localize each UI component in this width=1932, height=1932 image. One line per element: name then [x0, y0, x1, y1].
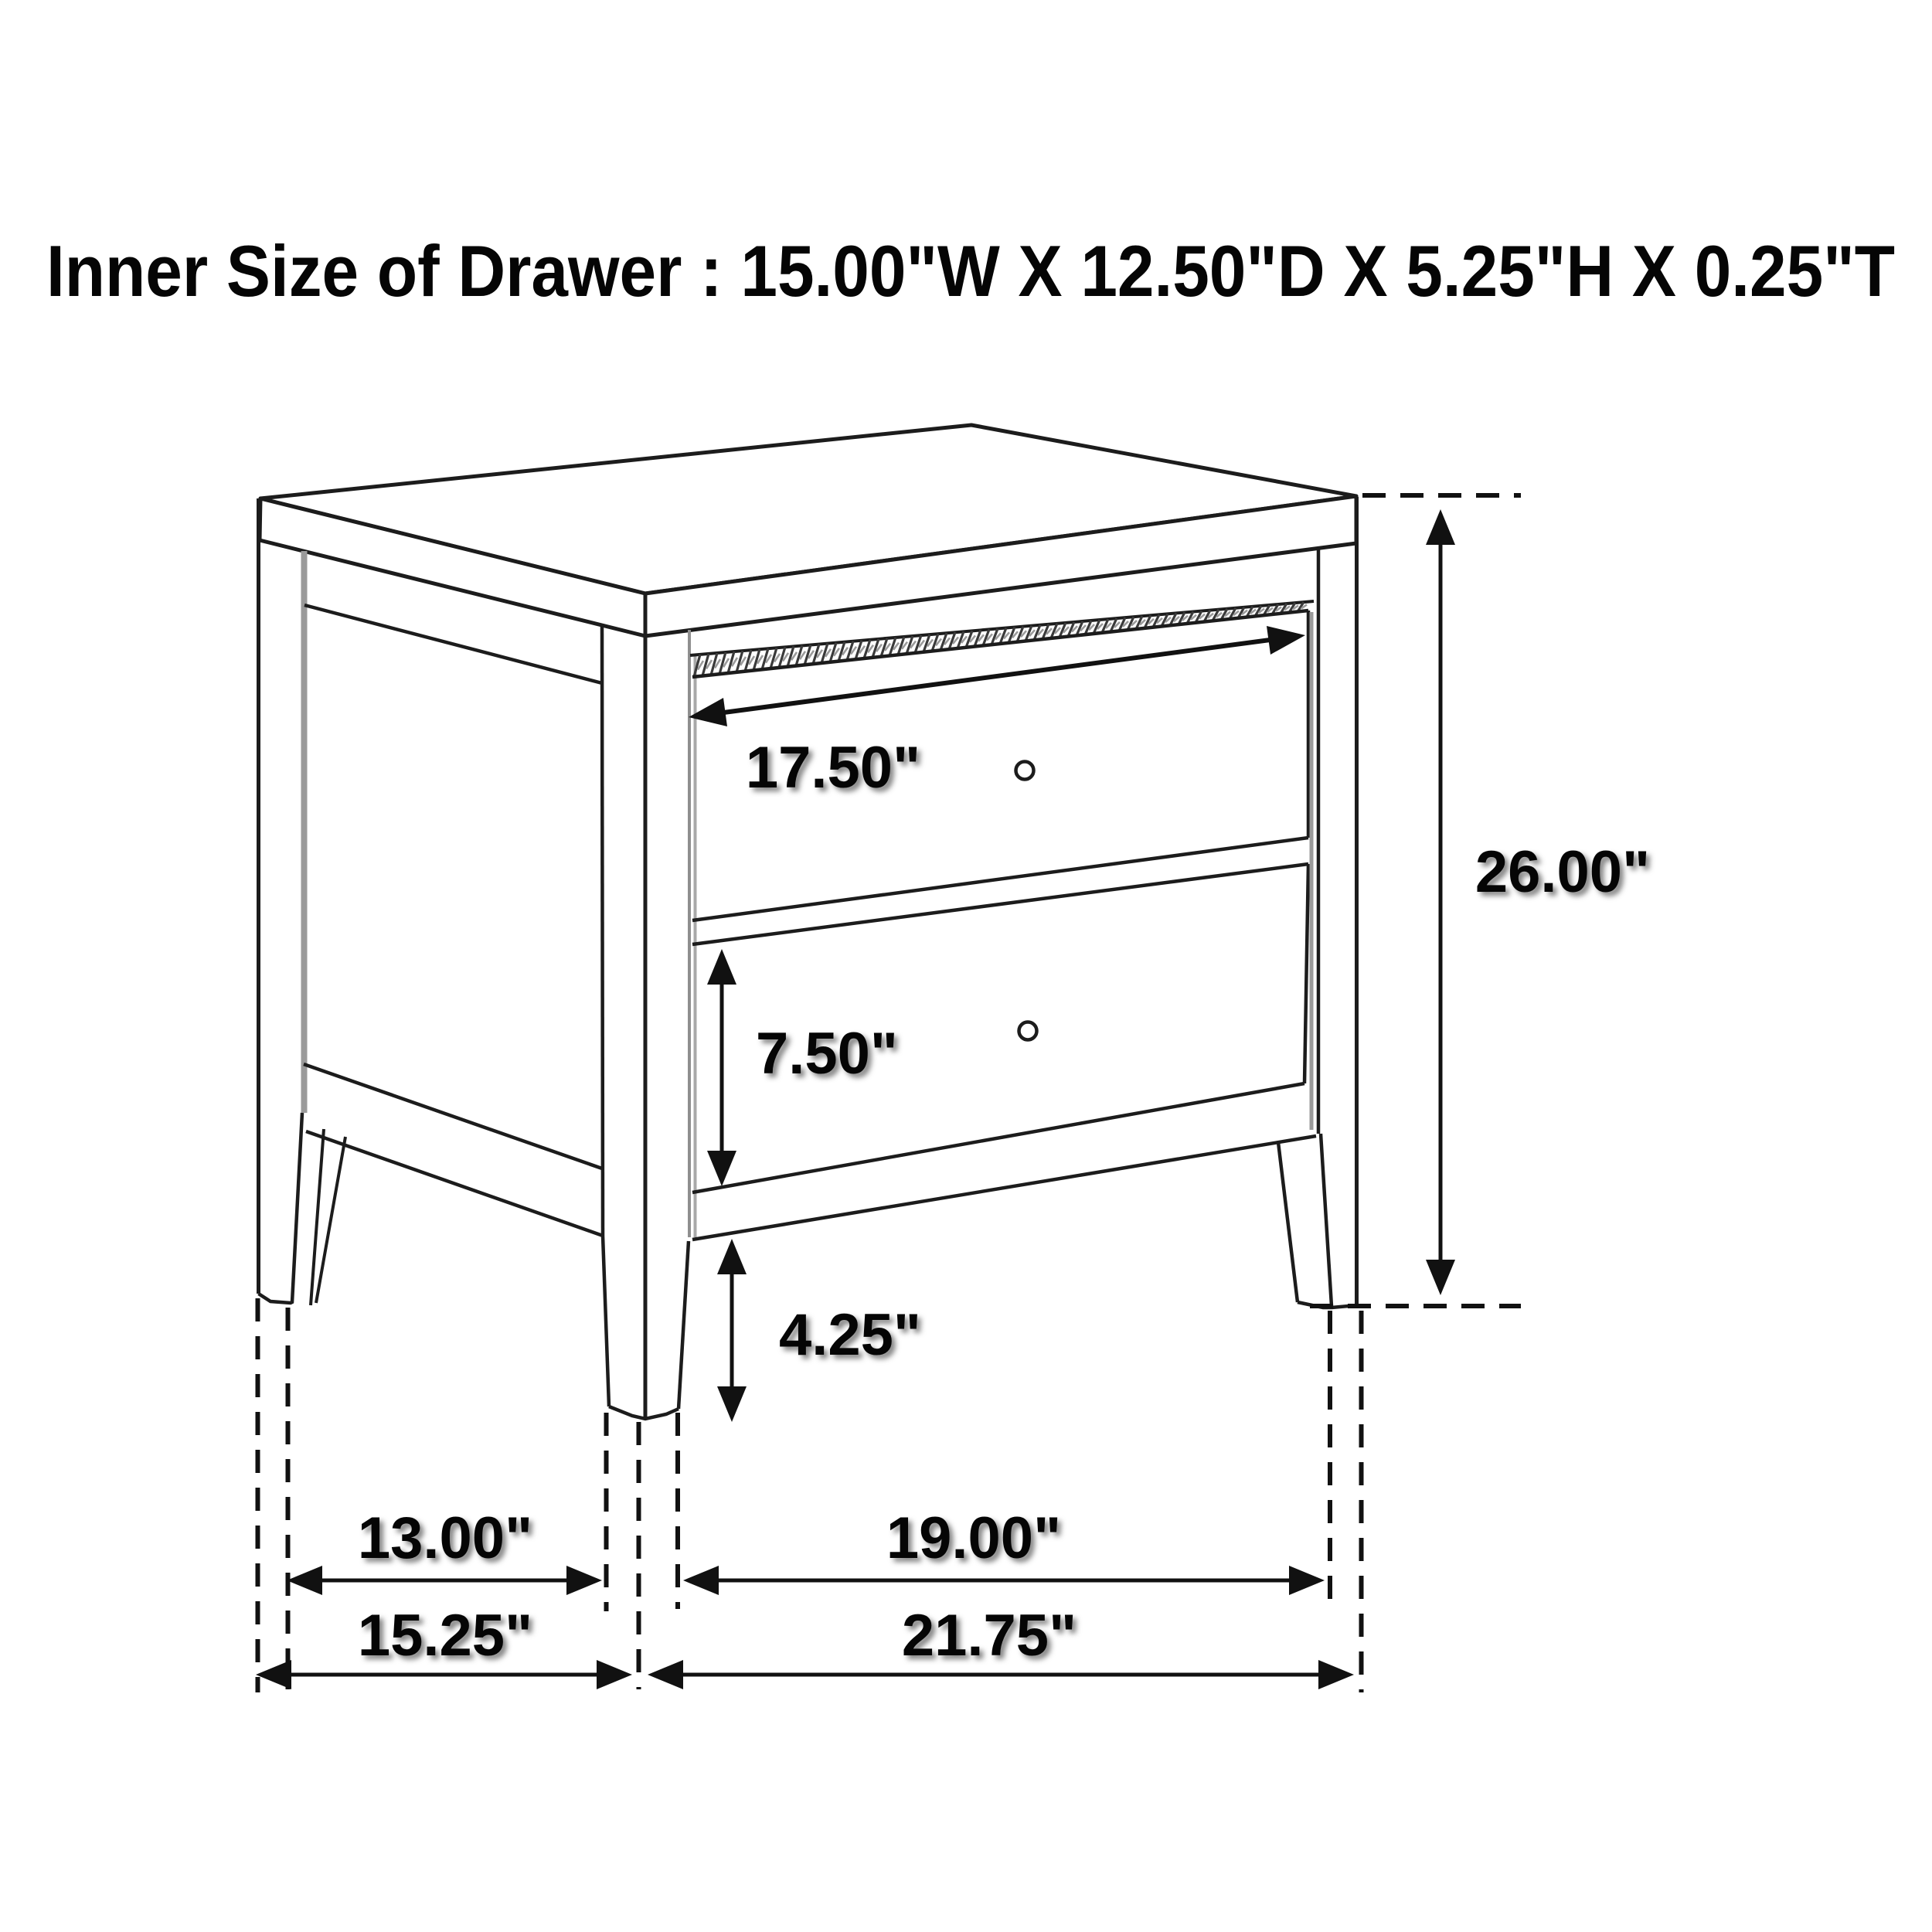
svg-text:21.75": 21.75"	[902, 1603, 1077, 1668]
svg-text:15.25": 15.25"	[358, 1603, 532, 1668]
svg-text:Inner Size of Drawer : 15.00"W: Inner Size of Drawer : 15.00"W X 12.50"D…	[46, 230, 1895, 311]
svg-text:4.25": 4.25"	[779, 1302, 921, 1368]
svg-text:17.50": 17.50"	[746, 735, 920, 801]
svg-text:26.00": 26.00"	[1475, 839, 1650, 905]
svg-text:19.00": 19.00"	[886, 1505, 1061, 1571]
svg-text:7.50": 7.50"	[756, 1021, 898, 1087]
svg-text:13.00": 13.00"	[358, 1505, 532, 1571]
